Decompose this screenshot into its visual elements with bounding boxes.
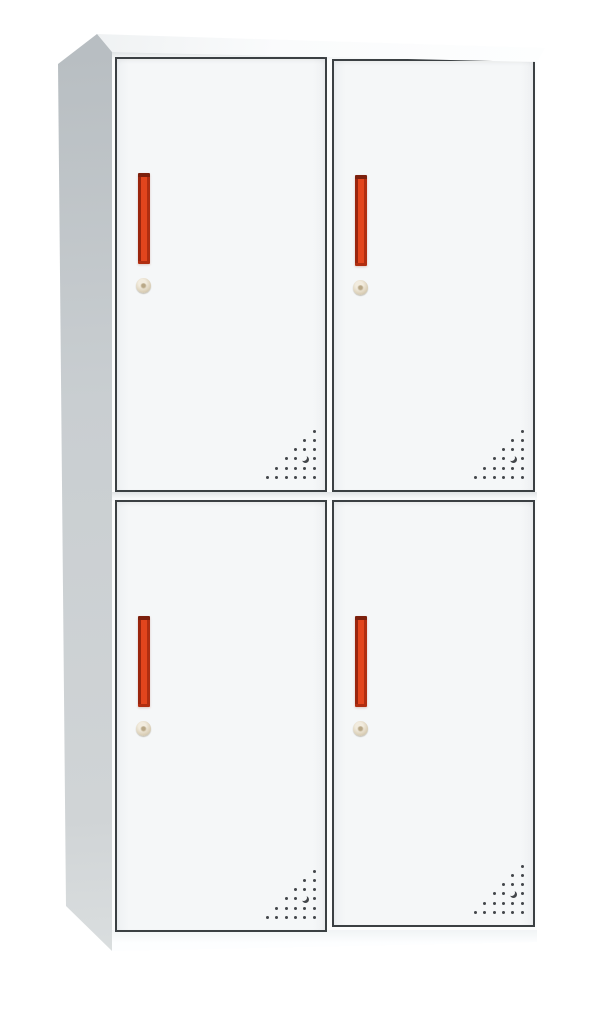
vent-hole	[313, 448, 316, 451]
vent-hole	[294, 467, 297, 470]
vent-hole	[521, 902, 524, 905]
vent-hole	[275, 907, 278, 910]
cam-lock-icon	[353, 280, 368, 295]
vent-hole	[502, 911, 505, 914]
vent-hole	[275, 476, 278, 479]
vent-hole	[502, 892, 505, 895]
vent-hole	[483, 911, 486, 914]
locker-door-bottom-right	[332, 500, 535, 927]
vent-hole	[303, 467, 306, 470]
vent-hole	[493, 476, 496, 479]
vent-hole	[511, 448, 514, 451]
vent-hole	[474, 911, 477, 914]
vent-hole	[303, 439, 306, 442]
vent-hole	[303, 907, 306, 910]
vent-hole	[275, 916, 278, 919]
vent-hole	[521, 430, 524, 433]
vent-hole	[493, 902, 496, 905]
vent-hole	[511, 902, 514, 905]
vent-hole	[294, 888, 297, 891]
vent-hole	[521, 874, 524, 877]
vent-hole	[313, 916, 316, 919]
vent-hole	[313, 907, 316, 910]
vent-hole	[285, 916, 288, 919]
vent-hole	[313, 897, 316, 900]
ventilation-holes	[469, 426, 527, 484]
product-photo	[0, 0, 605, 1009]
cabinet-side-panel	[54, 32, 114, 954]
vent-crescent-hole	[508, 889, 515, 896]
ventilation-holes	[261, 866, 319, 924]
vent-hole	[313, 888, 316, 891]
vent-hole	[313, 476, 316, 479]
vent-hole	[493, 457, 496, 460]
cam-lock-icon	[136, 278, 151, 293]
vent-hole	[313, 467, 316, 470]
vent-hole	[285, 467, 288, 470]
vent-hole	[511, 874, 514, 877]
vent-hole	[294, 916, 297, 919]
vent-hole	[313, 439, 316, 442]
vent-hole	[303, 476, 306, 479]
vent-hole	[521, 883, 524, 886]
vent-hole	[285, 897, 288, 900]
vent-hole	[502, 467, 505, 470]
vent-hole	[493, 892, 496, 895]
vent-hole	[313, 430, 316, 433]
vent-hole	[521, 865, 524, 868]
vent-hole	[493, 467, 496, 470]
vent-hole	[502, 457, 505, 460]
vent-hole	[511, 476, 514, 479]
vent-hole	[521, 457, 524, 460]
vent-hole	[502, 476, 505, 479]
door-handle-icon	[355, 616, 367, 707]
vent-hole	[294, 476, 297, 479]
ventilation-holes	[261, 426, 319, 484]
vent-hole	[303, 879, 306, 882]
locker-door-top-right	[332, 59, 535, 492]
door-handle-icon	[138, 173, 150, 264]
vent-hole	[294, 448, 297, 451]
vent-crescent-hole	[300, 894, 307, 901]
locker-door-bottom-left	[115, 500, 327, 932]
vent-hole	[483, 476, 486, 479]
vent-hole	[521, 892, 524, 895]
locker-door-top-left	[115, 57, 327, 492]
vent-hole	[303, 916, 306, 919]
vent-hole	[521, 439, 524, 442]
vent-hole	[285, 907, 288, 910]
vent-hole	[511, 883, 514, 886]
vent-hole	[294, 897, 297, 900]
vent-hole	[521, 448, 524, 451]
cam-lock-icon	[353, 721, 368, 736]
vent-hole	[313, 457, 316, 460]
vent-hole	[502, 902, 505, 905]
vent-hole	[313, 870, 316, 873]
door-handle-icon	[138, 616, 150, 707]
vent-crescent-hole	[508, 454, 515, 461]
vent-hole	[275, 467, 278, 470]
vent-hole	[474, 476, 477, 479]
door-handle-icon	[355, 175, 367, 266]
vent-hole	[303, 888, 306, 891]
vent-hole	[502, 883, 505, 886]
vent-hole	[303, 448, 306, 451]
cabinet-base	[112, 930, 537, 952]
ventilation-holes	[469, 861, 527, 919]
vent-hole	[521, 467, 524, 470]
vent-hole	[285, 476, 288, 479]
cabinet-front	[112, 52, 537, 952]
vent-hole	[294, 907, 297, 910]
vent-hole	[313, 879, 316, 882]
vent-hole	[483, 902, 486, 905]
vent-hole	[511, 911, 514, 914]
vent-crescent-hole	[300, 454, 307, 461]
vent-hole	[511, 439, 514, 442]
vent-hole	[521, 476, 524, 479]
cam-lock-icon	[136, 721, 151, 736]
vent-hole	[502, 448, 505, 451]
vent-hole	[294, 457, 297, 460]
vent-hole	[285, 457, 288, 460]
vent-hole	[266, 476, 269, 479]
vent-hole	[521, 911, 524, 914]
vent-hole	[493, 911, 496, 914]
vent-hole	[266, 916, 269, 919]
vent-hole	[483, 467, 486, 470]
vent-hole	[511, 467, 514, 470]
